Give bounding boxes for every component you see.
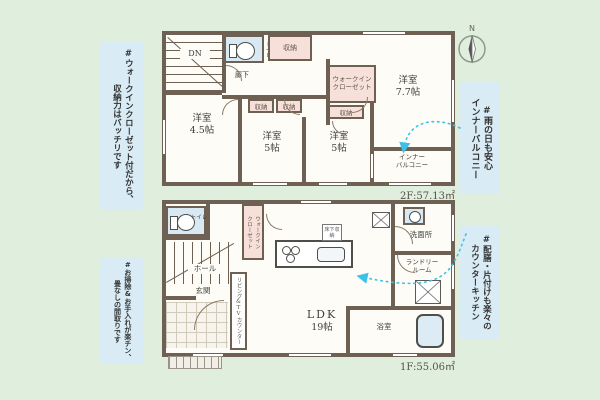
closet-label: 収納 — [255, 101, 268, 111]
stairs-down — [166, 35, 222, 91]
entrance-label: 玄関 — [188, 286, 218, 296]
underfloor-storage-icon: 床下収納 — [322, 224, 342, 241]
compass-needle-dark — [469, 35, 473, 63]
balcony-line: インナー — [376, 153, 448, 161]
wall — [391, 204, 395, 306]
room-label: 洋室 5帖 — [250, 131, 294, 156]
wall — [206, 204, 210, 240]
window — [252, 182, 288, 186]
note-walk-in-closet: #ウォークインクローゼット付だから、 収納力はバッチリです — [100, 42, 144, 210]
balcony-line: バルコニー — [376, 161, 448, 169]
window — [288, 353, 332, 357]
entrance-steps — [168, 356, 222, 369]
washer-space-icon — [415, 280, 441, 304]
window — [300, 200, 332, 204]
toilet-icon — [236, 42, 255, 60]
wic-line: クローゼット — [245, 216, 253, 249]
door-arc — [352, 97, 368, 113]
window — [451, 264, 455, 290]
wic-line: クローゼット — [333, 84, 372, 92]
stairs-diagonal-line — [167, 37, 223, 87]
wall — [346, 310, 350, 353]
wall — [346, 306, 451, 310]
wall — [166, 236, 210, 240]
wall — [238, 99, 242, 182]
compass-needle-light — [472, 35, 476, 63]
washing-machine-drum — [409, 211, 421, 223]
wall — [166, 296, 196, 300]
room-name: 洋室 — [380, 75, 436, 87]
sink-icon — [317, 247, 345, 262]
room-label: 洋室 4.5帖 — [176, 113, 228, 138]
hall-label: ホール — [188, 264, 222, 274]
door-arc — [395, 226, 413, 244]
floor2-plan: DN トイレ 収納 ウォークイン クローゼット 収納 収納 収納 廊下 洋室 — [162, 31, 455, 186]
window — [388, 182, 432, 186]
room-label: 洋室 5帖 — [314, 131, 364, 156]
room-size: 5帖 — [250, 143, 294, 155]
stairs-dn-label: DN — [180, 49, 210, 59]
room-name: LDK — [290, 308, 354, 322]
window — [451, 214, 455, 242]
note-line: カウンターキッチン — [470, 244, 479, 321]
bath-label: 浴室 — [364, 322, 404, 332]
stairs-up — [166, 242, 236, 284]
room-name: 洋室 — [176, 113, 228, 125]
room-name: 洋室 — [250, 131, 294, 143]
note-inner-balcony: #雨の日も安心 インナーバルコニー — [460, 82, 500, 194]
note-line: #お掃除&お手入れが楽チン、 — [124, 261, 131, 361]
window — [392, 353, 418, 357]
note-line: #ウォークインクローゼット付だから、 — [124, 49, 133, 204]
walk-in-closet: ウォークイン クローゼット — [242, 204, 264, 260]
refrigerator-space-icon — [372, 212, 390, 228]
window — [451, 79, 455, 123]
door-arc — [226, 65, 242, 81]
room-size: 7.7帖 — [380, 87, 436, 99]
washing-machine-icon — [403, 207, 425, 225]
note-counter-kitchen: #配膳・片付けも楽々の カウンターキッチン — [460, 226, 500, 339]
wall — [302, 117, 306, 182]
note-line: #雨の日も安心 — [482, 106, 491, 170]
compass-icon: N — [453, 20, 491, 66]
closet-label: 収納 — [283, 43, 297, 53]
wall — [166, 91, 222, 95]
window — [162, 119, 166, 155]
closet-label: 収納 — [340, 107, 353, 117]
underfloor-storage-label: 床下収納 — [323, 227, 341, 239]
note-line: インナーバルコニー — [469, 98, 478, 179]
sliding-door — [370, 153, 374, 179]
compass-north-label: N — [469, 24, 475, 33]
wic-line: ウォークイン — [253, 216, 261, 249]
window — [318, 182, 348, 186]
kitchen-counter — [275, 240, 353, 268]
closet: 収納 — [248, 99, 274, 113]
room-size: 19帖 — [290, 322, 354, 334]
toilet-room — [224, 35, 264, 63]
wic-label: ウォークイン クローゼット — [333, 76, 372, 92]
floor1-plan: トイレ UP ホール 玄関 ウォークイン クローゼット リビング&TVカウンター — [162, 200, 455, 357]
room-label: LDK 19帖 — [290, 308, 354, 335]
note-line: 畳なしの間取りです — [113, 280, 120, 343]
room-size: 5帖 — [314, 143, 364, 155]
note-line: #配膳・片付けも楽々の — [482, 235, 491, 330]
stove-burner-icon — [286, 254, 295, 263]
door-arc — [222, 99, 238, 115]
note-easy-care: #お掃除&お手入れが楽チン、 畳なしの間取りです — [100, 258, 144, 364]
bathtub-icon — [416, 314, 444, 348]
window — [362, 31, 406, 35]
room-size: 4.5帖 — [176, 125, 228, 137]
note-line: 収納力はバッチリです — [112, 84, 121, 169]
stairs-diagonal-line — [166, 243, 234, 283]
door-arc — [266, 214, 282, 230]
tv-counter-label: リビング&TVカウンター — [235, 277, 243, 345]
tv-counter: リビング&TVカウンター — [230, 272, 247, 350]
wall — [370, 147, 451, 151]
closet: 収納 — [268, 35, 312, 61]
floorplan-flyer: #ウォークインクローゼット付だから、 収納力はバッチリです #お掃除&お手入れが… — [0, 0, 600, 400]
room-label: 洋室 7.7帖 — [380, 75, 436, 100]
floor1-area-label: 1F:55.06㎡ — [351, 358, 455, 373]
balcony-label: インナー バルコニー — [376, 153, 448, 170]
